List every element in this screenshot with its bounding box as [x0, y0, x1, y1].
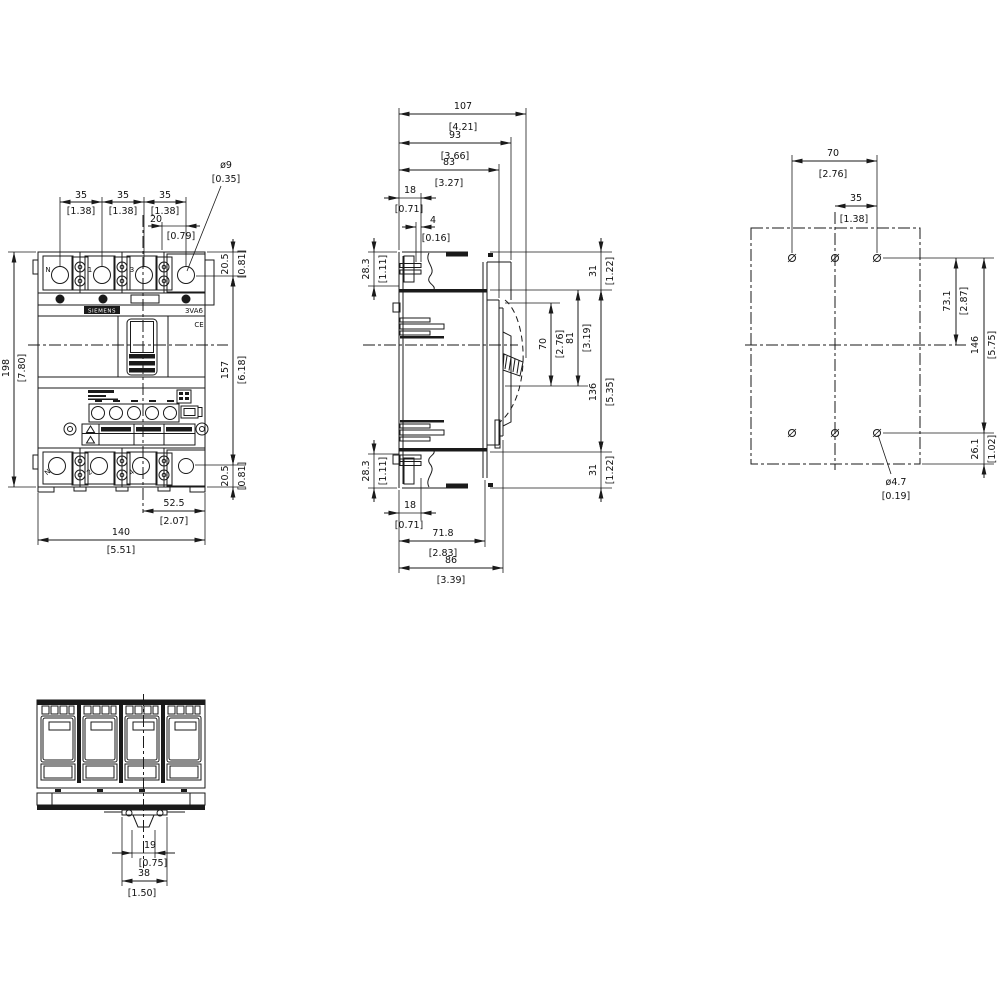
dim-center-to-edge-mm: 52.5: [163, 498, 184, 509]
dim-pitch2-mm: 35: [117, 190, 129, 201]
setting-dial: [92, 407, 105, 420]
dim-front-fix-offset: 20 [0.79]: [148, 214, 200, 250]
dim-depth-body-mm: 71.8: [432, 528, 453, 539]
dim-clip-outer-mm: 38: [138, 868, 150, 879]
dim-terminal-bottom-mm: 28.3: [361, 460, 372, 481]
side-view: 107 [4.21] 93 [3.66] 83 [3.27] 18 [0.71]…: [361, 101, 616, 586]
terminal-hole-4: [133, 458, 150, 475]
dim-fix-hole-in: [0.35]: [212, 174, 241, 185]
dim-lug-depth-bottom-mm: 18: [404, 500, 416, 511]
setting-dial: [128, 407, 141, 420]
dim-lug-depth-top-mm: 18: [404, 185, 416, 196]
pole-module: [41, 706, 75, 780]
side-body-outline: [393, 252, 523, 488]
setting-dial: [110, 407, 123, 420]
dim-terminal-top-in: [1.11]: [378, 255, 389, 284]
dim-fix-offset-mm: 20: [150, 214, 162, 225]
bottom-view: 19 [0.75] 38 [1.50]: [37, 694, 205, 899]
front-logo-band: SIEMENS 3VA6: [38, 295, 205, 317]
drilling-plan: 70 [2.76] 35 [1.38] 73.1 [2.87] 146 [5.7…: [745, 148, 998, 502]
pole-module: [83, 706, 117, 780]
dim-height-in: [7.80]: [17, 354, 28, 383]
dim-pitch1-mm: 35: [75, 190, 87, 201]
dim-side-depths-top: 107 [4.21] 93 [3.66] 83 [3.27]: [399, 101, 526, 358]
dim-upper-in: [2.87]: [959, 287, 970, 316]
dim-edge-bottom-mm: 31: [588, 464, 599, 476]
dim-fix-offset-in: [0.79]: [167, 231, 196, 242]
callout-drill-hole: ø4.7 [0.19]: [878, 435, 910, 502]
dim-drill-vertical: 73.1 [2.87] 146 [5.75] 26.1 [1.02]: [883, 258, 998, 478]
dim-lug-thickness-mm: 4: [430, 215, 436, 226]
dim-fix-hole-mm: ø9: [220, 160, 232, 171]
terminal-label-n-top: N: [45, 266, 50, 274]
dim-edge-top-mm: 31: [588, 265, 599, 277]
dim-half-span-mm: 35: [850, 193, 862, 204]
dim-terminal-top-mm: 28.3: [361, 258, 372, 279]
terminal-hole-2: [91, 458, 108, 475]
dim-hole-in: [0.19]: [882, 491, 911, 502]
setting-dial: [164, 407, 177, 420]
side-louvres: [400, 318, 444, 441]
dim-terminal-bottom-in: [1.11]: [378, 457, 389, 486]
toggle-handle: [131, 322, 154, 353]
dim-edge-bottom-in: [1.22]: [605, 456, 616, 485]
ce-mark: CE: [194, 321, 203, 329]
dim-top-edge-mm: 20.5: [220, 253, 231, 274]
terminal-label-n-bottom: N: [43, 468, 52, 478]
code-block: [177, 390, 191, 403]
dim-vspan-in: [5.75]: [987, 331, 998, 360]
dim-pitch3-mm: 35: [159, 190, 171, 201]
terminal-hole-n-bottom: [49, 458, 66, 475]
dim-clip-inner-mm: 19: [144, 840, 156, 851]
dim-depth-max-mm: 107: [454, 101, 472, 112]
break-line-bottom: [428, 451, 434, 487]
product-family-label: 3VA6: [185, 307, 204, 315]
pole-module: [167, 706, 201, 780]
dim-pitch2-in: [1.38]: [109, 206, 138, 217]
brand-logo-text: SIEMENS: [88, 309, 116, 315]
dim-height-mm: 198: [1, 359, 12, 377]
terminal-hole-n: [52, 267, 69, 284]
cover-screw-icon: [99, 295, 108, 304]
dim-handle-b-in: [3.19]: [582, 324, 593, 353]
break-line-top: [428, 253, 434, 289]
dim-lower-mm: 26.1: [970, 438, 981, 459]
fixing-hole-bottom: [179, 459, 194, 474]
pole-module: [125, 706, 159, 780]
drawing-canvas: N 1 3 SIEMENS 3VA6 CE: [0, 0, 1000, 1000]
front-rating-plate: [64, 390, 208, 445]
dim-bottom-edge-in: [0.81]: [237, 462, 248, 491]
dim-depth-cover-mm: 83: [443, 157, 455, 168]
dim-center-to-edge-in: [2.07]: [160, 516, 189, 527]
cover-screw-icon: [182, 295, 191, 304]
dim-handle-b-mm: 81: [565, 332, 576, 344]
dim-front-height-in: [5.35]: [605, 378, 616, 407]
dim-span-mm: 70: [827, 148, 839, 159]
terminal-label-3: 3: [130, 266, 134, 274]
plate-screw-icon: [64, 423, 76, 435]
setting-dial: [146, 407, 159, 420]
warning-triangle-icon: [87, 437, 95, 444]
cover-screw-icon: [56, 295, 65, 304]
dim-top-edge-in: [0.81]: [237, 250, 248, 279]
front-view: N 1 3 SIEMENS 3VA6 CE: [1, 160, 248, 556]
dim-lower-in: [1.02]: [987, 435, 998, 464]
bottom-body: [37, 700, 205, 810]
dim-depth-in: [3.39]: [437, 575, 466, 586]
dim-front-height: 198 [7.80]: [1, 252, 36, 487]
fixing-hole-top: [178, 267, 195, 284]
dim-lug-depth-bottom-in: [0.71]: [395, 520, 424, 531]
dim-vspan-mm: 146: [970, 336, 981, 354]
dim-width-mm: 140: [112, 527, 130, 538]
toggle-bezel: [127, 319, 157, 375]
dim-edge-top-in: [1.22]: [605, 257, 616, 286]
dim-depth-cover-in: [3.27]: [435, 178, 464, 189]
dim-depth-mm: 86: [445, 555, 457, 566]
dim-lug-depth-top-in: [0.71]: [395, 204, 424, 215]
dimension-drawing-page: N 1 3 SIEMENS 3VA6 CE: [0, 0, 1000, 1000]
front-face: CE: [38, 316, 205, 388]
dim-half-span-in: [1.38]: [840, 214, 869, 225]
dim-hole-span-in: [6.18]: [237, 356, 248, 385]
terminal-hole-3: [136, 267, 153, 284]
dim-lug-thickness-in: [0.16]: [422, 233, 451, 244]
dim-upper-mm: 73.1: [942, 290, 953, 311]
terminal-label-1: 1: [88, 266, 92, 274]
dim-side-lug-top: 18 [0.71] 4 [0.16]: [384, 185, 450, 262]
warning-triangle-icon: [87, 426, 95, 433]
dim-hole-span-mm: 157: [220, 361, 231, 379]
dim-handle-a-mm: 70: [538, 338, 549, 350]
front-top-terminals: N 1 3: [38, 252, 205, 293]
terminal-hole-1: [94, 267, 111, 284]
dim-front-height-mm: 136: [588, 383, 599, 401]
dim-front-right-column: 20.5 [0.81] 157 [6.18] 20.5 [0.81]: [195, 239, 248, 500]
dim-bottom-edge-mm: 20.5: [220, 465, 231, 486]
terminal-label-2: 2: [85, 468, 94, 477]
plate-screw-icon: [196, 423, 208, 435]
dim-depth-bezel-mm: 93: [449, 130, 461, 141]
dim-span-in: [2.76]: [819, 169, 848, 180]
din-rail-clip: [104, 810, 185, 827]
dim-width-in: [5.51]: [107, 545, 136, 556]
dim-front-bottom: 52.5 [2.07] 140 [5.51]: [38, 493, 205, 556]
rail-bar: [37, 805, 205, 810]
dim-pitch1-in: [1.38]: [67, 206, 96, 217]
dim-hole-mm: ø4.7: [886, 477, 907, 488]
dim-clip-outer-in: [1.50]: [128, 888, 157, 899]
front-bottom-terminals: N 2 4: [38, 448, 205, 487]
